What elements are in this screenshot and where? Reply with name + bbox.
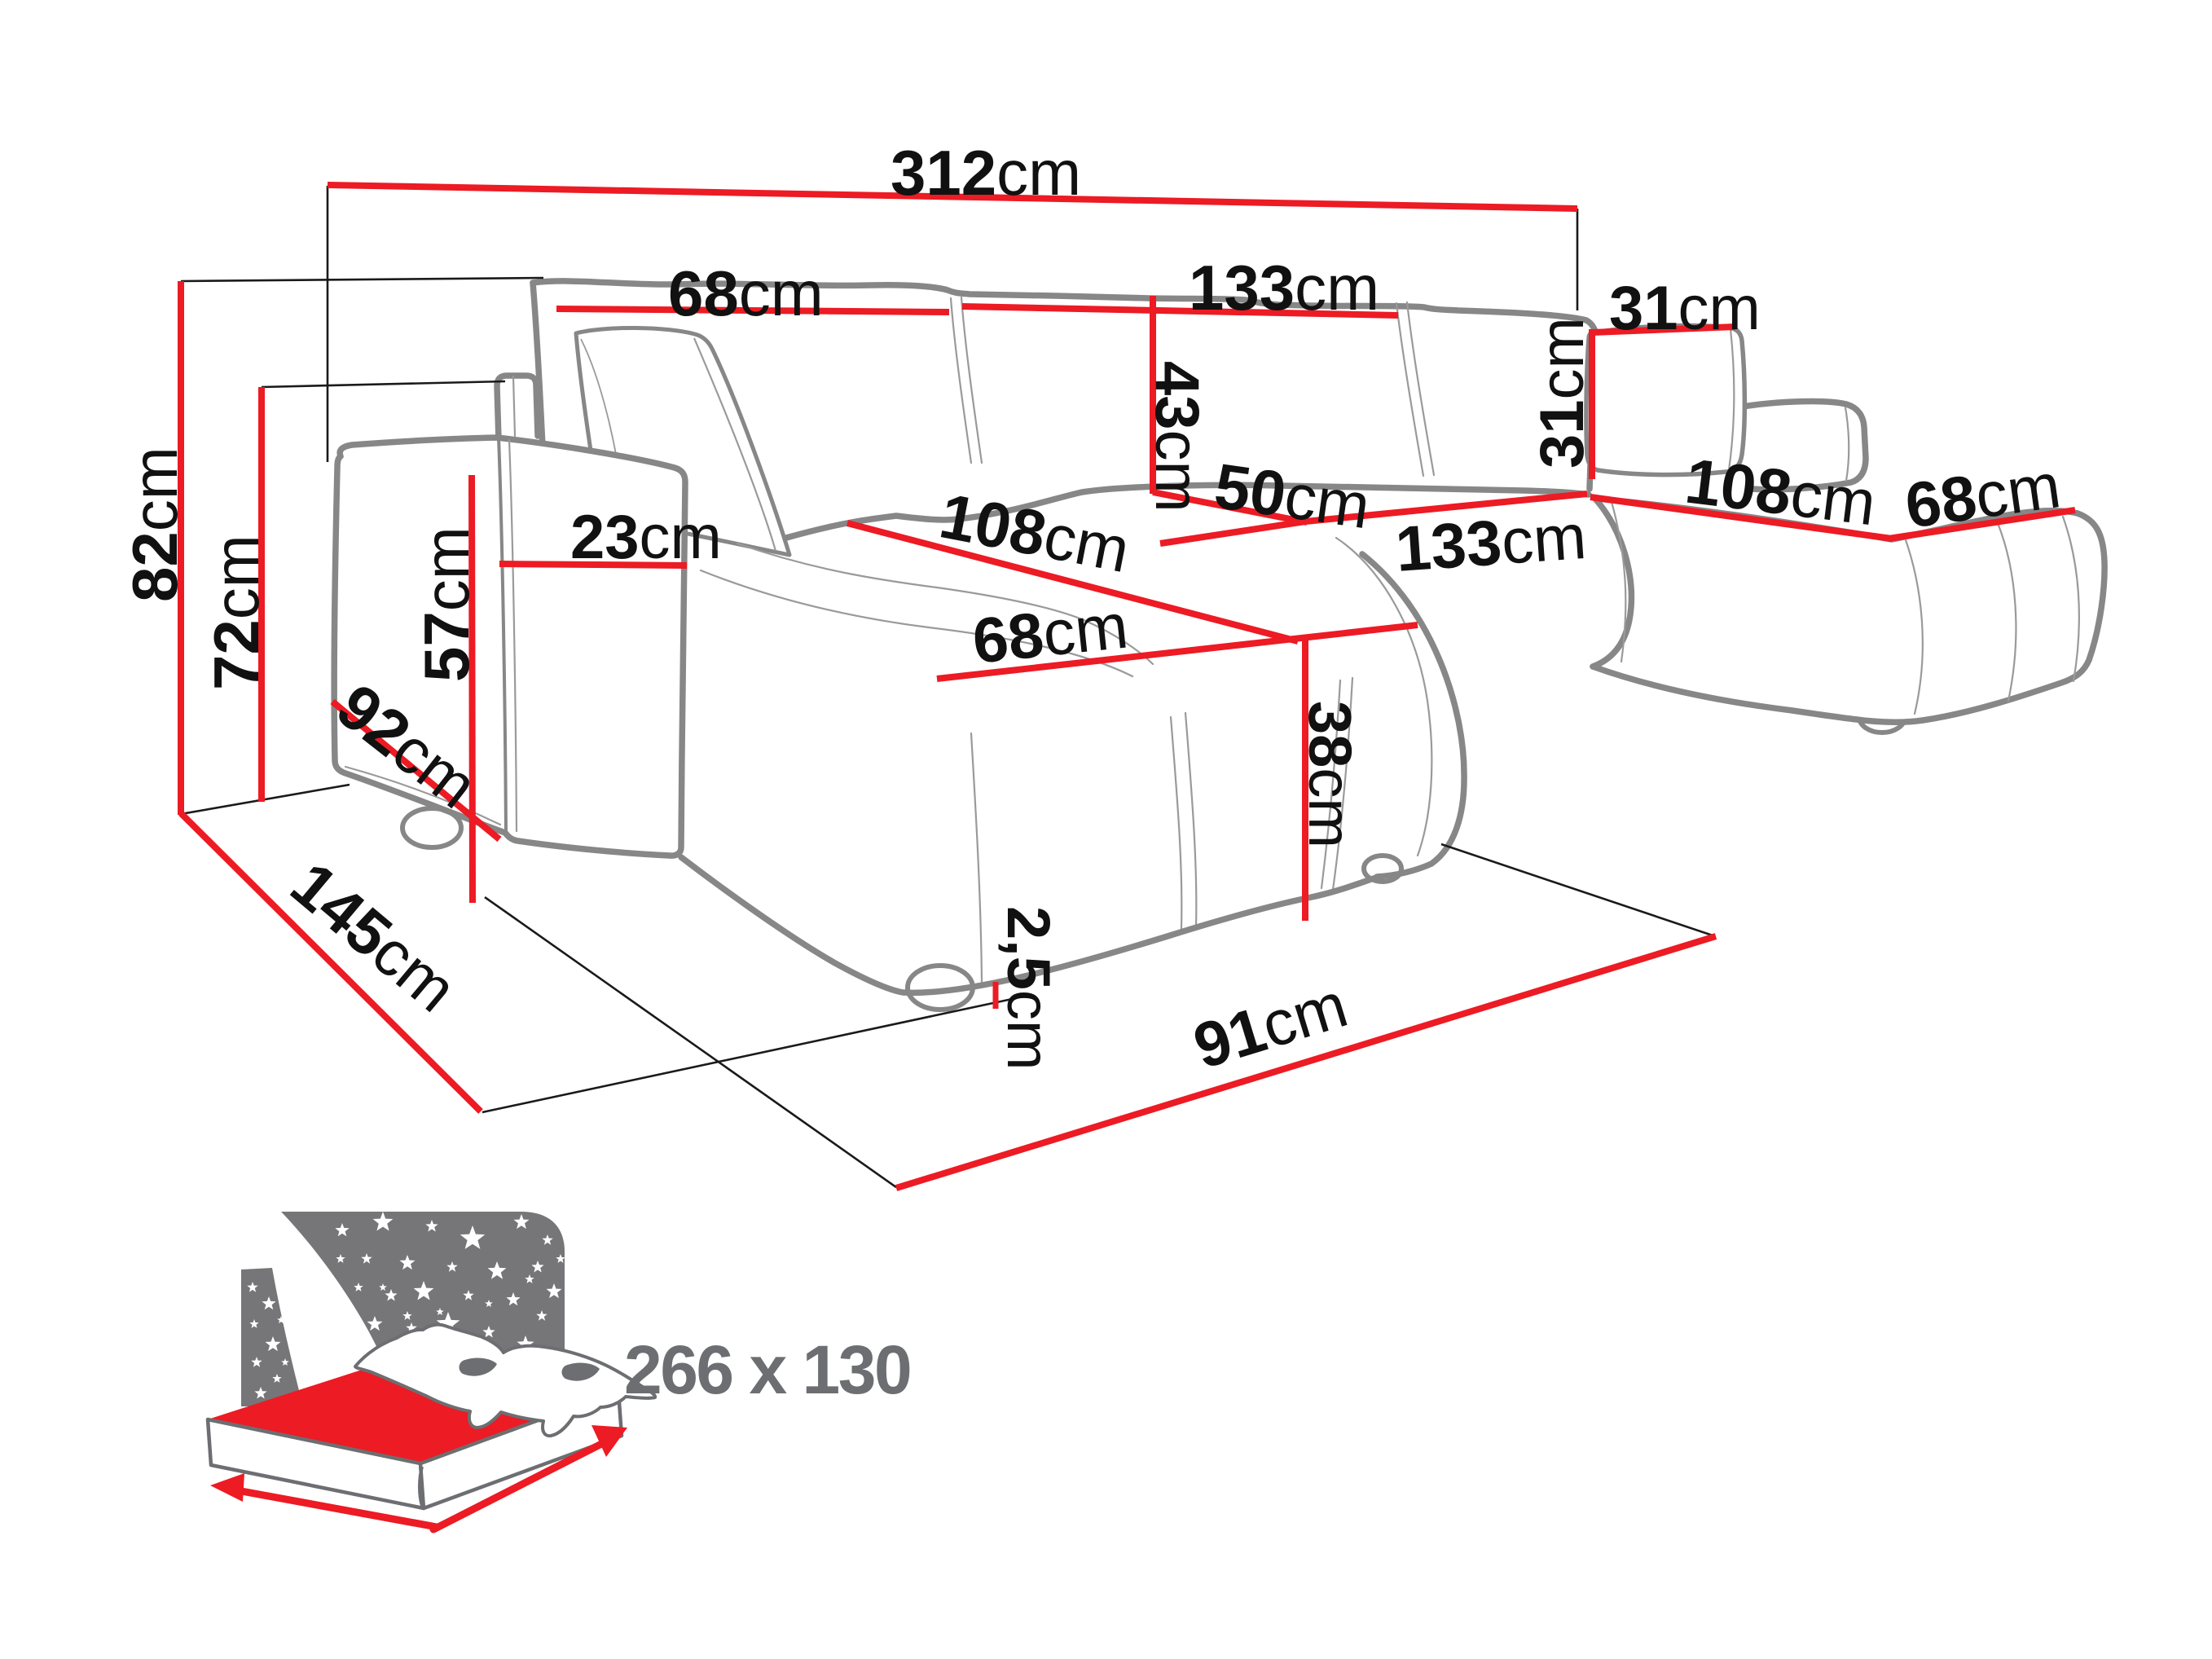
svg-text:133cm: 133cm bbox=[1189, 252, 1379, 323]
svg-text:43cm: 43cm bbox=[1142, 361, 1212, 513]
svg-text:82cm: 82cm bbox=[119, 447, 191, 602]
svg-text:2,5cm: 2,5cm bbox=[995, 906, 1062, 1071]
svg-text:68cm: 68cm bbox=[668, 257, 824, 329]
svg-text:31cm: 31cm bbox=[1609, 274, 1761, 343]
svg-text:312cm: 312cm bbox=[891, 137, 1081, 209]
svg-text:23cm: 23cm bbox=[570, 503, 722, 572]
svg-text:38cm: 38cm bbox=[1296, 701, 1364, 848]
svg-text:57cm: 57cm bbox=[411, 526, 482, 682]
svg-text:266 x 130: 266 x 130 bbox=[624, 1331, 910, 1408]
svg-text:133cm: 133cm bbox=[1393, 500, 1589, 585]
svg-text:72cm: 72cm bbox=[200, 535, 272, 690]
svg-text:31cm: 31cm bbox=[1528, 317, 1597, 469]
